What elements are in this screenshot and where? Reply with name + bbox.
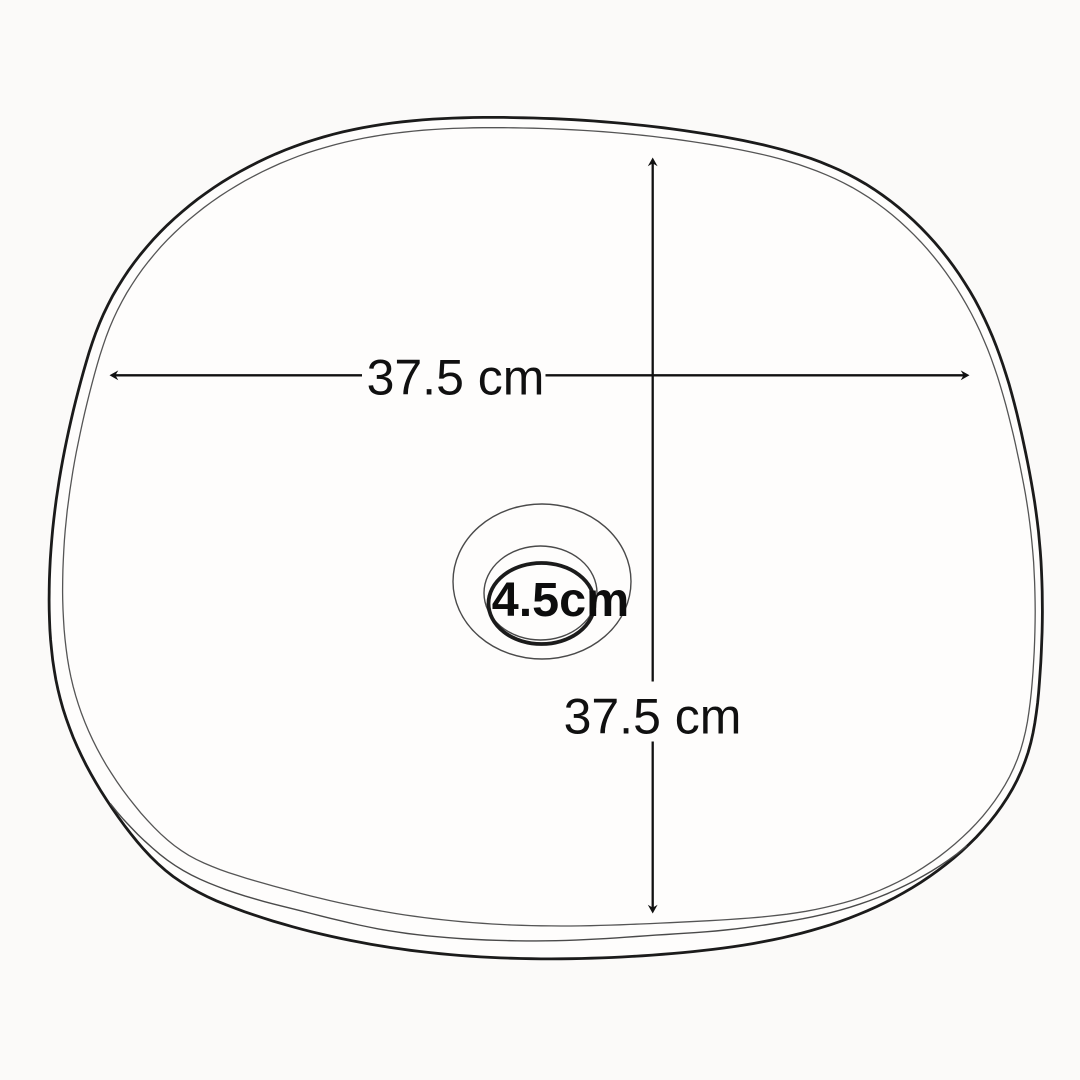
svg-text:4.5cm: 4.5cm — [492, 573, 630, 627]
svg-text:37.5 cm: 37.5 cm — [564, 688, 742, 744]
svg-text:37.5 cm: 37.5 cm — [367, 349, 545, 405]
